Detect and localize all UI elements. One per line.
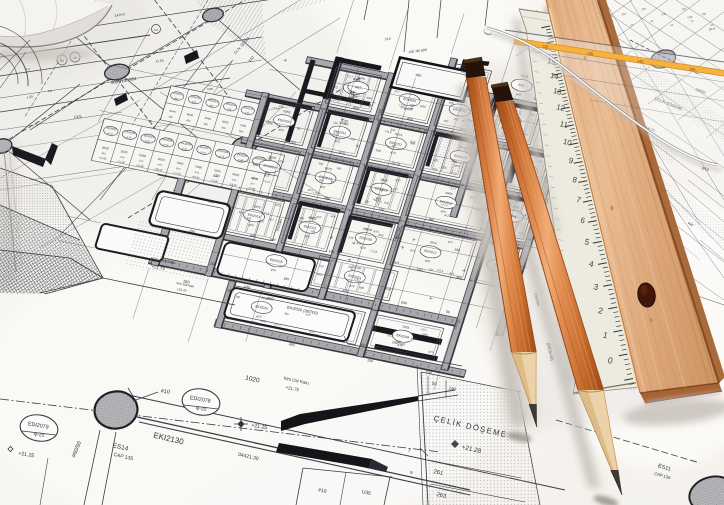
svg-text:1.2: 1.2 (26, 67, 31, 71)
svg-text:0.8: 0.8 (48, 89, 53, 93)
svg-text:C25: C25 (207, 87, 213, 91)
svg-text:b2: b2 (154, 28, 158, 32)
